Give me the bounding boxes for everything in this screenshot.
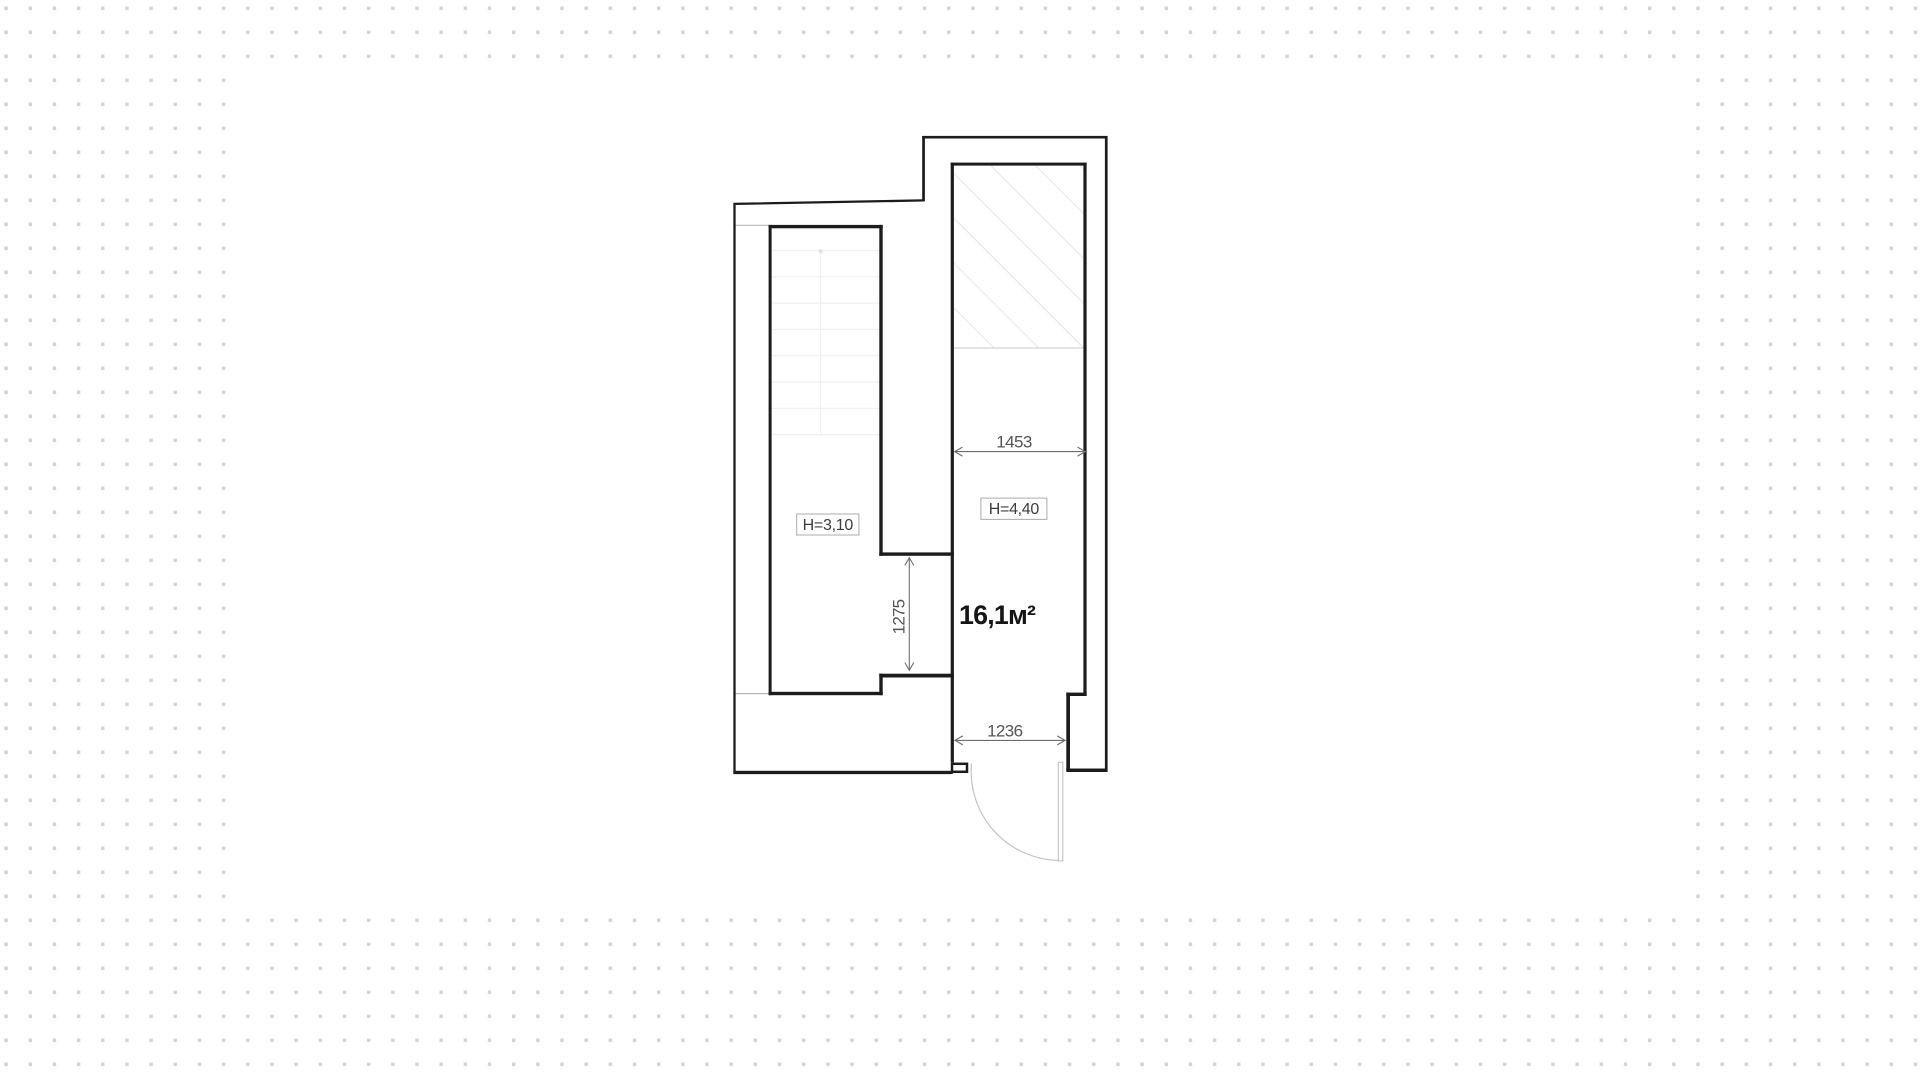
svg-text:H=3,10: H=3,10 <box>803 517 854 534</box>
svg-text:16,1м²: 16,1м² <box>959 600 1036 630</box>
svg-text:1236: 1236 <box>987 721 1023 740</box>
svg-text:1453: 1453 <box>996 432 1032 451</box>
svg-text:1275: 1275 <box>890 599 909 634</box>
svg-text:H=4,40: H=4,40 <box>989 501 1040 518</box>
